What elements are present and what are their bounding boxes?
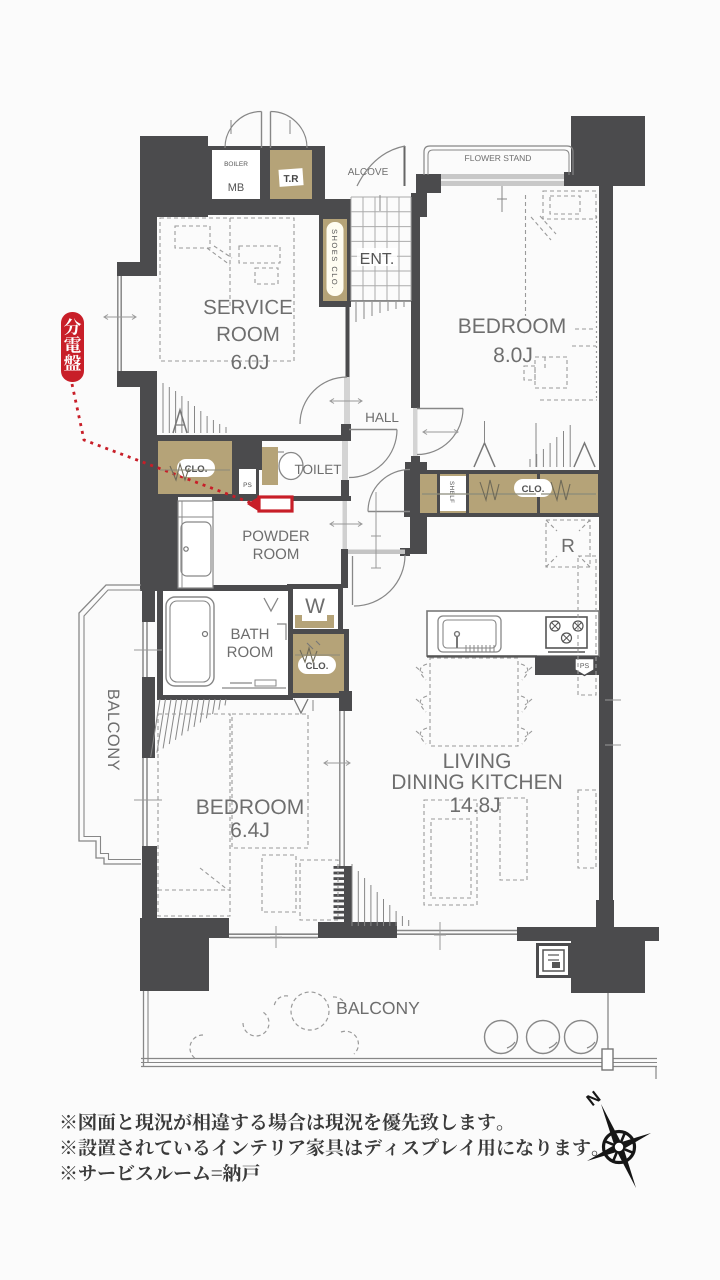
svg-text:CLO.: CLO. [306, 661, 329, 672]
svg-text:BEDROOM: BEDROOM [196, 796, 305, 819]
svg-text:6.4J: 6.4J [230, 819, 270, 842]
svg-text:ROOM: ROOM [227, 644, 274, 661]
svg-text:TOILET: TOILET [294, 462, 341, 477]
svg-text:SERVICE: SERVICE [203, 296, 293, 319]
svg-text:W: W [305, 595, 325, 618]
svg-text:BALCONY: BALCONY [104, 689, 122, 771]
svg-text:SHELF: SHELF [448, 481, 455, 503]
svg-text:BOILER: BOILER [224, 161, 248, 168]
svg-text:POWDER: POWDER [242, 528, 310, 545]
svg-text:ENT.: ENT. [360, 251, 395, 268]
svg-text:PS: PS [580, 663, 590, 670]
svg-text:8.0J: 8.0J [493, 344, 533, 367]
svg-text:PS: PS [243, 482, 252, 489]
svg-text:CLO.: CLO. [522, 484, 545, 495]
svg-text:ROOM: ROOM [216, 323, 280, 346]
svg-text:ALCOVE: ALCOVE [348, 167, 389, 178]
svg-text:HALL: HALL [365, 410, 399, 425]
svg-text:BATH: BATH [231, 626, 270, 643]
svg-text:SHOES CLO.: SHOES CLO. [330, 229, 339, 290]
svg-text:ROOM: ROOM [253, 546, 300, 563]
svg-text:DINING KITCHEN: DINING KITCHEN [391, 771, 563, 794]
svg-text:14.8J: 14.8J [449, 794, 500, 817]
svg-text:R: R [561, 536, 575, 557]
svg-text:BALCONY: BALCONY [336, 998, 420, 1018]
svg-text:T.R: T.R [284, 174, 300, 185]
svg-text:BEDROOM: BEDROOM [458, 315, 567, 338]
svg-text:MB: MB [228, 182, 245, 194]
svg-text:FLOWER STAND: FLOWER STAND [465, 153, 532, 163]
svg-text:LIVING: LIVING [443, 750, 512, 773]
svg-text:6.0J: 6.0J [231, 351, 270, 374]
